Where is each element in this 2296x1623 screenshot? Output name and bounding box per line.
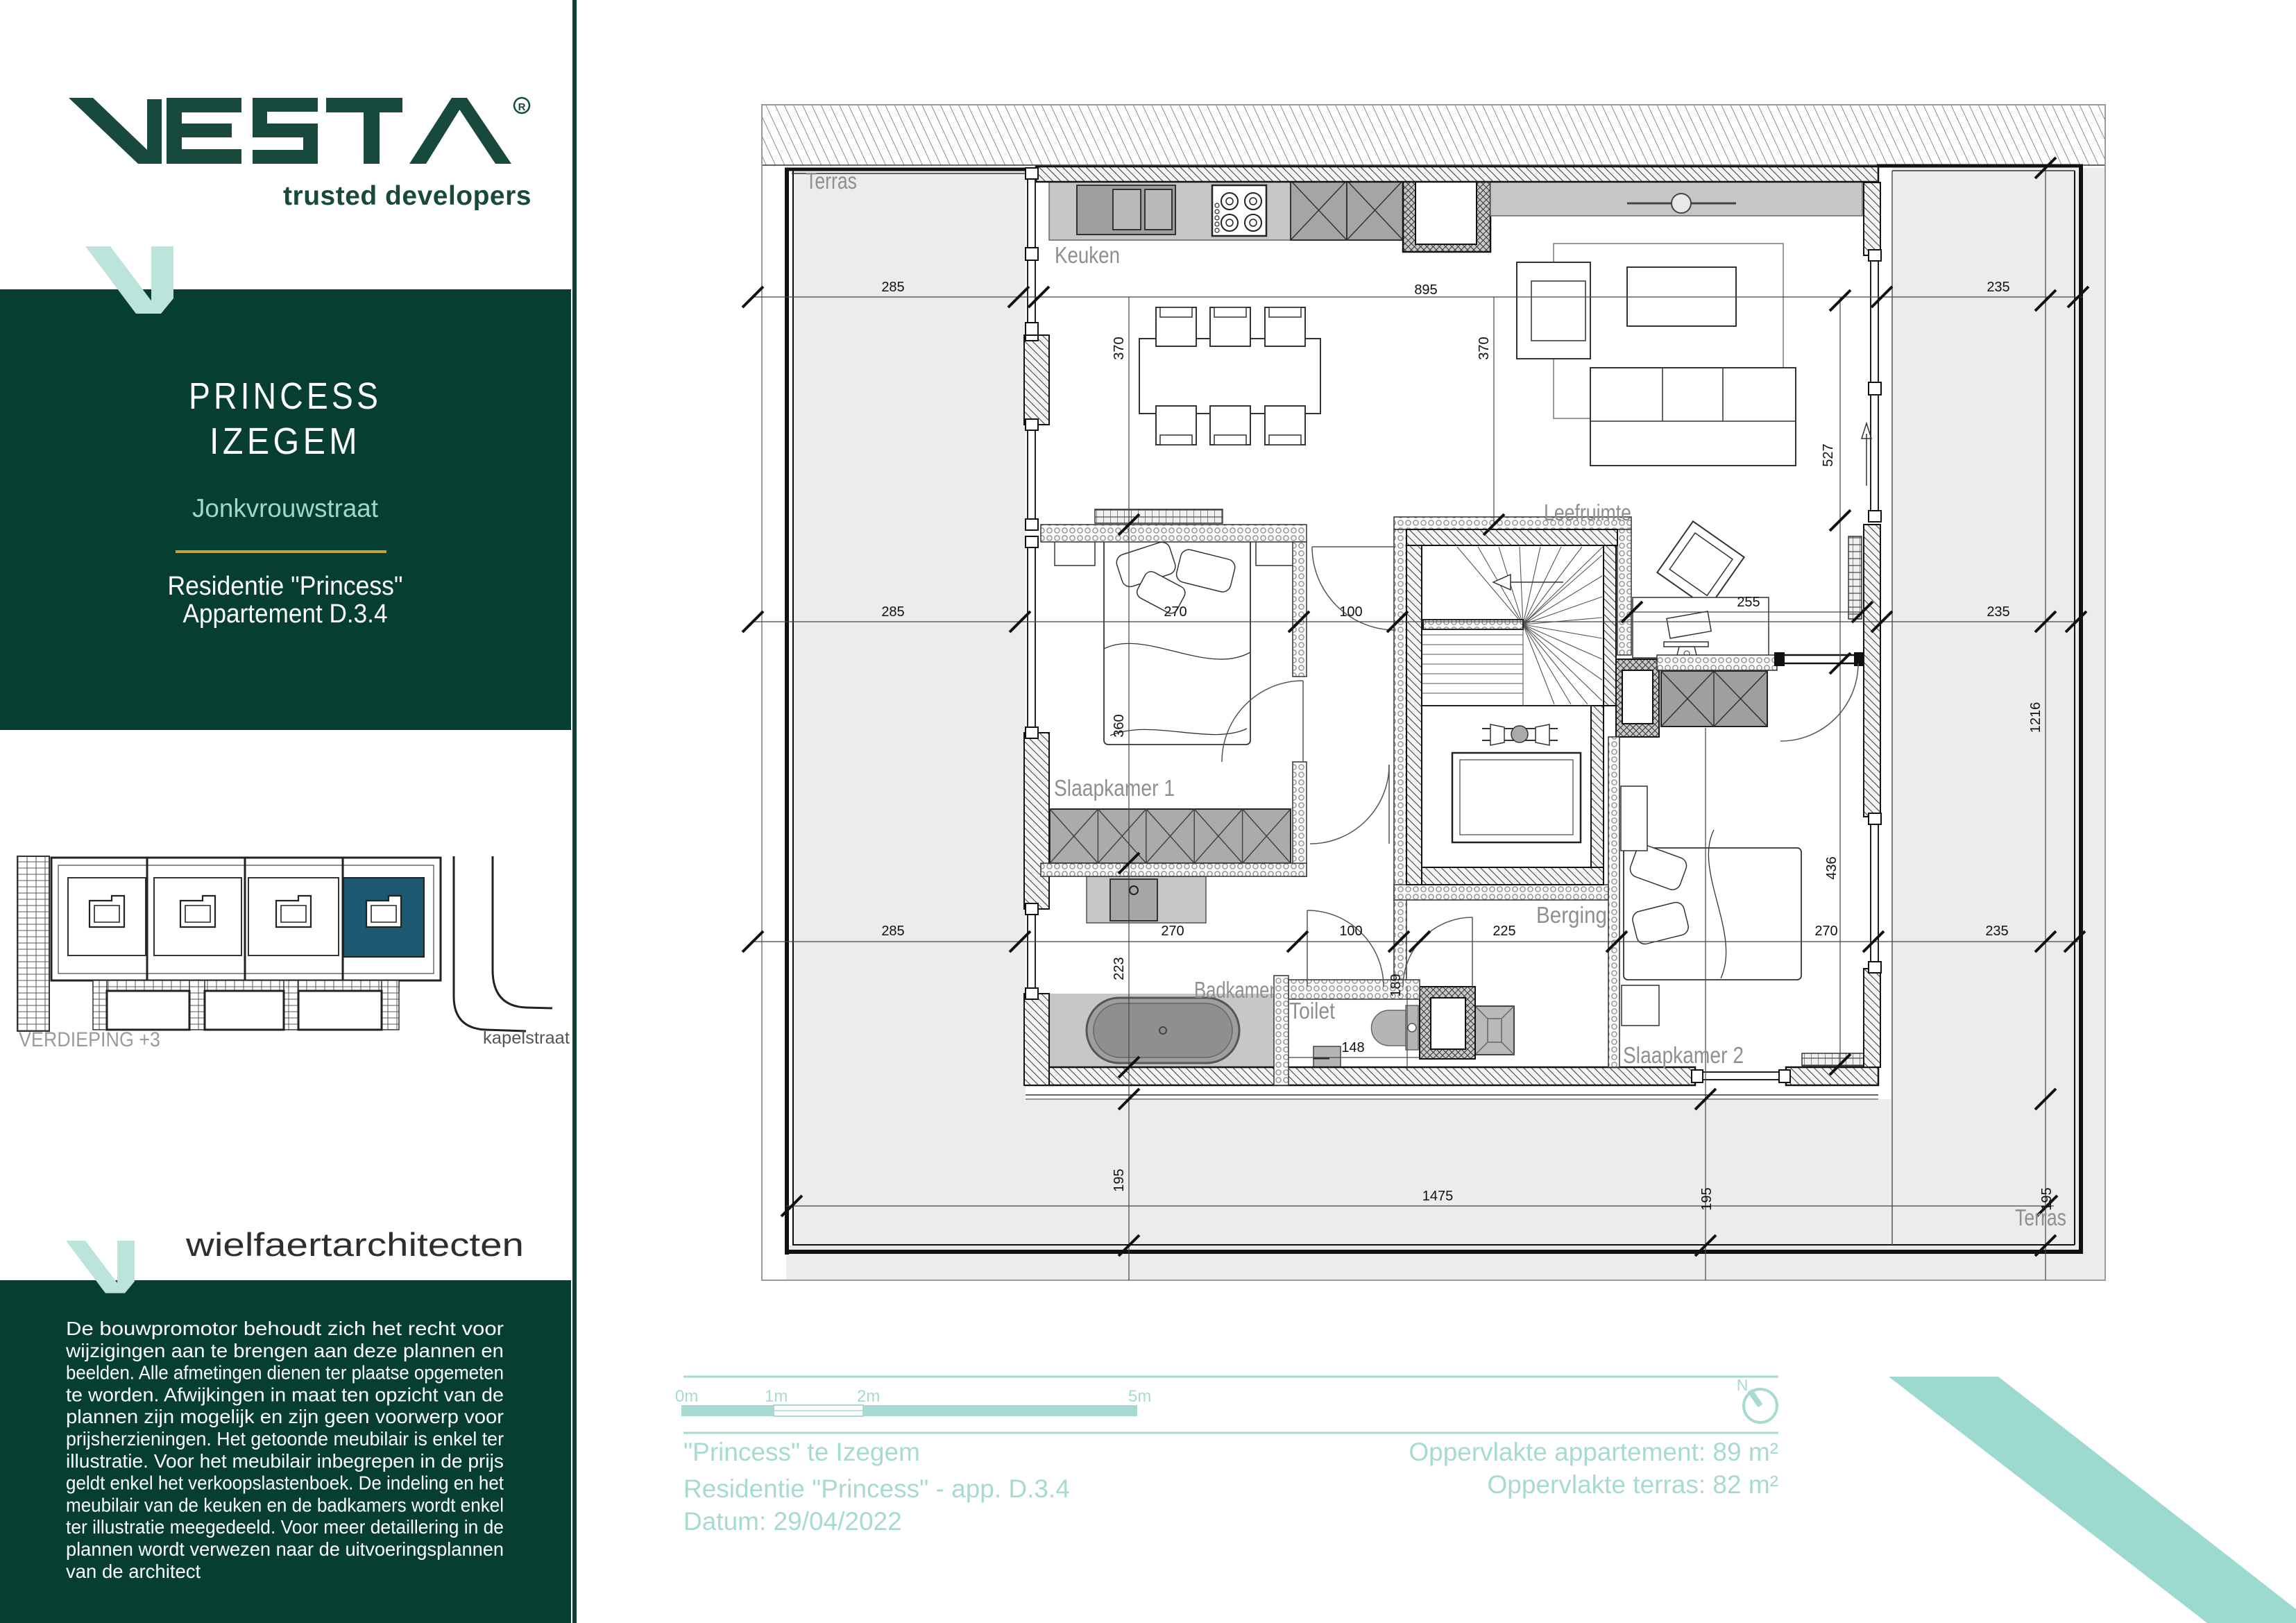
- svg-text:270: 270: [1814, 924, 1837, 939]
- svg-text:1475: 1475: [1422, 1189, 1454, 1204]
- svg-text:270: 270: [1161, 924, 1184, 939]
- svg-text:2m: 2m: [857, 1387, 880, 1406]
- svg-text:1216: 1216: [2028, 702, 2043, 733]
- svg-text:223: 223: [1112, 957, 1127, 980]
- svg-text:370: 370: [1477, 337, 1492, 359]
- svg-text:N: N: [1737, 1376, 1749, 1394]
- svg-text:1m: 1m: [765, 1387, 788, 1406]
- svg-text:270: 270: [1164, 604, 1187, 620]
- svg-text:De bouwpromotor behoudt zich h: De bouwpromotor behoudt zich het recht v…: [66, 1318, 504, 1339]
- svg-text:prijsherzieningen. Het getoond: prijsherzieningen. Het getoonde meubilai…: [66, 1428, 504, 1450]
- svg-text:meubilair van de keuken en de: meubilair van de keuken en de badkamers …: [66, 1494, 504, 1515]
- svg-text:kapelstraat: kapelstraat: [483, 1028, 570, 1048]
- svg-text:370: 370: [1112, 337, 1127, 359]
- svg-text:Terras: Terras: [2015, 1205, 2066, 1230]
- svg-text:Oppervlakte appartement: 89 m²: Oppervlakte appartement: 89 m²: [1409, 1438, 1778, 1466]
- svg-text:189: 189: [1388, 974, 1404, 996]
- svg-text:illustratie. Voor het meubilai: illustratie. Voor het meubilair inbegrep…: [66, 1450, 504, 1472]
- svg-text:285: 285: [881, 280, 904, 295]
- svg-text:100: 100: [1339, 924, 1362, 939]
- svg-text:895: 895: [1414, 282, 1437, 298]
- svg-text:235: 235: [1987, 280, 2009, 295]
- svg-text:Badkamer: Badkamer: [1194, 977, 1275, 1003]
- svg-text:"Princess" te Izegem: "Princess" te Izegem: [683, 1438, 920, 1466]
- svg-text:148: 148: [1341, 1040, 1364, 1055]
- svg-text:5m: 5m: [1128, 1387, 1151, 1406]
- svg-text:Keuken: Keuken: [1055, 242, 1120, 268]
- svg-text:235: 235: [1985, 924, 2008, 939]
- svg-text:IZEGEM: IZEGEM: [210, 420, 361, 462]
- svg-text:0m: 0m: [675, 1387, 698, 1406]
- svg-text:527: 527: [1821, 443, 1836, 466]
- svg-text:Slaapkamer 1: Slaapkamer 1: [1054, 775, 1175, 801]
- svg-text:te worden. Afwijkingen in maat: te worden. Afwijkingen in maat ten opzic…: [66, 1384, 504, 1405]
- svg-text:PRINCESS: PRINCESS: [189, 375, 382, 417]
- svg-text:225: 225: [1493, 924, 1515, 939]
- svg-text:Berging: Berging: [1536, 902, 1607, 928]
- svg-text:wijzigingen aan te brengen aan: wijzigingen aan te brengen aan deze plan…: [65, 1340, 504, 1361]
- svg-text:436: 436: [1824, 856, 1839, 879]
- svg-text:wielfaertarchitecten: wielfaertarchitecten: [185, 1226, 524, 1263]
- svg-text:trusted developers: trusted developers: [283, 181, 532, 211]
- svg-text:195: 195: [1699, 1187, 1715, 1210]
- svg-text:plannen wordt verwezen naar de: plannen wordt verwezen naar de uitvoerin…: [66, 1538, 504, 1560]
- svg-text:ter illustratie meegedeeld. Vo: ter illustratie meegedeeld. Voor meer de…: [66, 1516, 504, 1538]
- svg-text:Slaapkamer 2: Slaapkamer 2: [1623, 1042, 1744, 1068]
- svg-text:Oppervlakte terras: 82 m²: Oppervlakte terras: 82 m²: [1488, 1470, 1778, 1499]
- svg-text:360: 360: [1112, 714, 1127, 737]
- svg-text:Jonkvrouwstraat: Jonkvrouwstraat: [192, 494, 379, 522]
- svg-text:VERDIEPING +3: VERDIEPING +3: [19, 1028, 160, 1051]
- svg-text:Terras: Terras: [806, 168, 857, 194]
- svg-text:Appartement D.3.4: Appartement D.3.4: [183, 600, 388, 629]
- svg-text:geldt enkel het verkoopslasten: geldt enkel het verkoopslastenboek. De i…: [66, 1472, 504, 1494]
- svg-text:R: R: [518, 101, 526, 113]
- svg-text:Leefruimte: Leefruimte: [1544, 500, 1631, 525]
- svg-text:255: 255: [1737, 595, 1760, 610]
- svg-text:beelden. Alle afmetingen diene: beelden. Alle afmetingen dienen ter plaa…: [66, 1362, 504, 1384]
- svg-text:285: 285: [881, 924, 904, 939]
- svg-text:Datum: 29/04/2022: Datum: 29/04/2022: [683, 1507, 902, 1536]
- svg-text:Toilet: Toilet: [1289, 998, 1335, 1023]
- svg-text:Residentie "Princess" - app. D: Residentie "Princess" - app. D.3.4: [683, 1475, 1070, 1503]
- svg-text:plannen zijn mogelijk en zijn: plannen zijn mogelijk en zijn geen voorw…: [66, 1406, 504, 1427]
- svg-text:Residentie "Princess": Residentie "Princess": [168, 572, 403, 601]
- svg-text:285: 285: [881, 604, 904, 620]
- svg-text:100: 100: [1339, 604, 1362, 620]
- svg-text:van de architect: van de architect: [66, 1561, 201, 1582]
- svg-text:195: 195: [1112, 1169, 1127, 1191]
- svg-text:235: 235: [1987, 604, 2009, 620]
